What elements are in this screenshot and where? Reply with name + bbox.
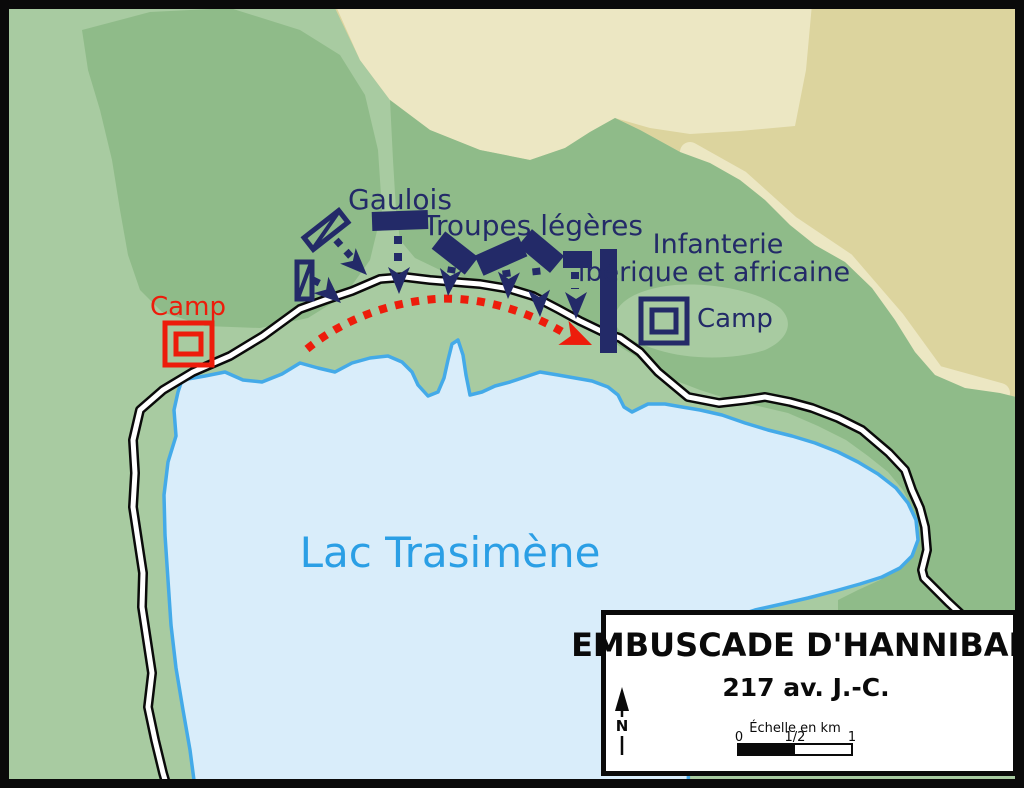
legend-title: EMBUSCADE D'HANNIBAL — [571, 626, 1024, 664]
label-camp-romain: Camp — [150, 292, 226, 322]
label-lake-trasimene: Lac Trasimène — [300, 528, 601, 577]
label-infanterie-line1: Infanterie — [653, 229, 784, 260]
light-troops-unit-2-attack-line — [506, 270, 507, 277]
light-troops-unit-1-attack-line — [451, 267, 452, 273]
battle-map: Gaulois Troupes légères Infanterie ibéri… — [0, 0, 1024, 788]
scale-tick-1: 1 — [848, 730, 856, 745]
north-arrow-label: N — [616, 717, 629, 735]
label-troupes-legeres: Troupes légères — [422, 209, 643, 242]
scale-tick-half: 1/2 — [785, 730, 806, 745]
label-camp-carthaginois: Camp — [697, 304, 773, 334]
map-canvas: Gaulois Troupes légères Infanterie ibéri… — [0, 0, 1024, 788]
scale-bar-filled-half — [738, 744, 795, 755]
scale-tick-0: 0 — [735, 730, 743, 745]
legend-box: EMBUSCADE D'HANNIBAL 217 av. J.-C. N Éch… — [571, 613, 1024, 774]
label-infanterie-line2: ibérique et africaine — [578, 257, 850, 288]
legend-date: 217 av. J.-C. — [722, 673, 889, 702]
